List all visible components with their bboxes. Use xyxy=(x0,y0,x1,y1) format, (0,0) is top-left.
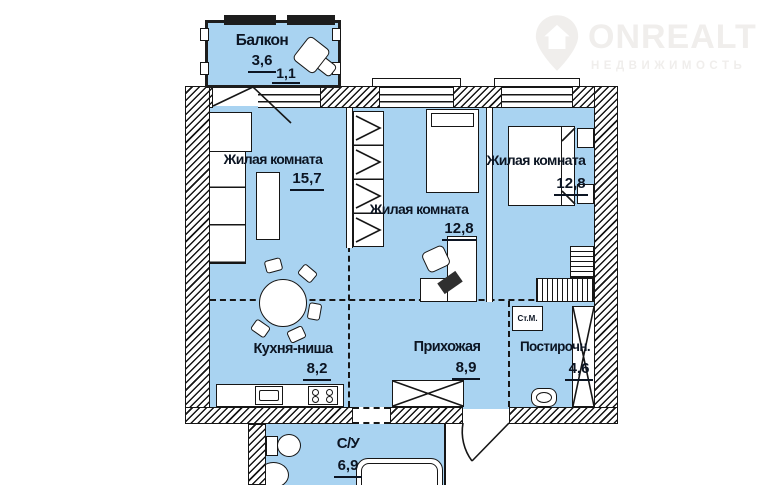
closet-vertical xyxy=(570,246,594,278)
room-area-kitchen: 8,2 xyxy=(303,361,331,381)
window-living3 xyxy=(502,86,572,108)
room-label-living3: Жилая комната xyxy=(481,153,591,168)
partition-living1-living2 xyxy=(346,106,353,248)
wall-bottom-b xyxy=(390,407,463,424)
washing-machine: Ст.М. xyxy=(512,306,543,331)
bathroom-opening xyxy=(353,407,390,424)
window-living2 xyxy=(380,86,453,108)
room-label-bathroom: С/У xyxy=(318,436,378,453)
closet-horizontal xyxy=(536,278,594,302)
entrance-door-arc xyxy=(462,423,472,461)
dining-table xyxy=(259,279,307,327)
bathtub xyxy=(356,458,443,485)
window-ledge xyxy=(494,78,580,87)
onrealt-pin-icon xyxy=(532,14,582,72)
hall-wardrobe xyxy=(392,380,464,407)
desk xyxy=(447,236,477,302)
wardrobe xyxy=(353,111,384,247)
room-area-bathroom: 6,9 xyxy=(334,458,362,478)
stove xyxy=(308,386,338,405)
wall-left xyxy=(185,86,210,424)
kitchen-sink-basin xyxy=(259,390,279,401)
balcony-window xyxy=(258,86,320,108)
room-label-kitchen: Кухня-ниша xyxy=(238,342,348,358)
kitchen-sink xyxy=(255,386,283,405)
stove-burner xyxy=(326,389,333,396)
nightstand-top xyxy=(577,128,594,148)
room-area-living1: 15,7 xyxy=(290,171,324,191)
room-label-balcony: Балкон xyxy=(222,32,302,49)
logo-brand-text: ONREALT xyxy=(588,18,757,57)
sofa-chaise xyxy=(208,112,252,152)
pillow xyxy=(431,113,474,127)
room-area-hallway: 8,9 xyxy=(452,360,480,380)
logo-subtitle-text: НЕДВИЖИМОСТЬ xyxy=(591,60,746,72)
partition-living2-living3 xyxy=(486,106,493,302)
bathtub-inner xyxy=(361,463,438,485)
balcony-post xyxy=(200,28,209,41)
room-label-living2: Жилая комната xyxy=(364,202,474,217)
wall-top-c xyxy=(453,86,502,108)
room-area-living2: 12,8 xyxy=(442,221,476,241)
stove-burner xyxy=(312,396,319,403)
tv-stand xyxy=(256,172,280,240)
room-area2-balcony: 1,1 xyxy=(272,66,300,84)
room-area-laundry: 4,6 xyxy=(565,361,593,381)
floor-plan: ONREALT НЕДВИЖИМОСТЬ xyxy=(0,0,782,485)
laundry-sink-basin xyxy=(536,392,552,403)
laundry-sink xyxy=(531,388,557,407)
room-label-hallway: Прихожая xyxy=(397,340,497,356)
toilet-bowl xyxy=(277,434,301,457)
stove-burner xyxy=(312,389,319,396)
room-label-laundry: Постирочн. xyxy=(510,340,600,355)
room-area-living3: 12,8 xyxy=(554,176,588,196)
stove-burner xyxy=(326,396,333,403)
duct-shaft xyxy=(572,306,595,407)
zone-line-kitchen xyxy=(348,246,350,407)
balcony-glazing xyxy=(224,15,276,25)
balcony-glazing xyxy=(287,15,335,25)
room-label-living1: Жилая комната xyxy=(208,152,338,167)
balcony-post xyxy=(200,62,209,75)
bathroom-wall-left xyxy=(248,424,266,485)
washing-machine-label: Ст.М. xyxy=(513,315,542,324)
wall-right xyxy=(594,86,618,424)
onrealt-logo: ONREALT НЕДВИЖИМОСТЬ xyxy=(532,14,782,78)
balcony-post xyxy=(332,28,341,41)
wall-bottom-c xyxy=(509,407,618,424)
wall-top-b xyxy=(320,86,380,108)
window-ledge xyxy=(372,78,461,87)
entrance-door-leaf xyxy=(472,423,509,461)
wall-bottom-a xyxy=(185,407,353,424)
